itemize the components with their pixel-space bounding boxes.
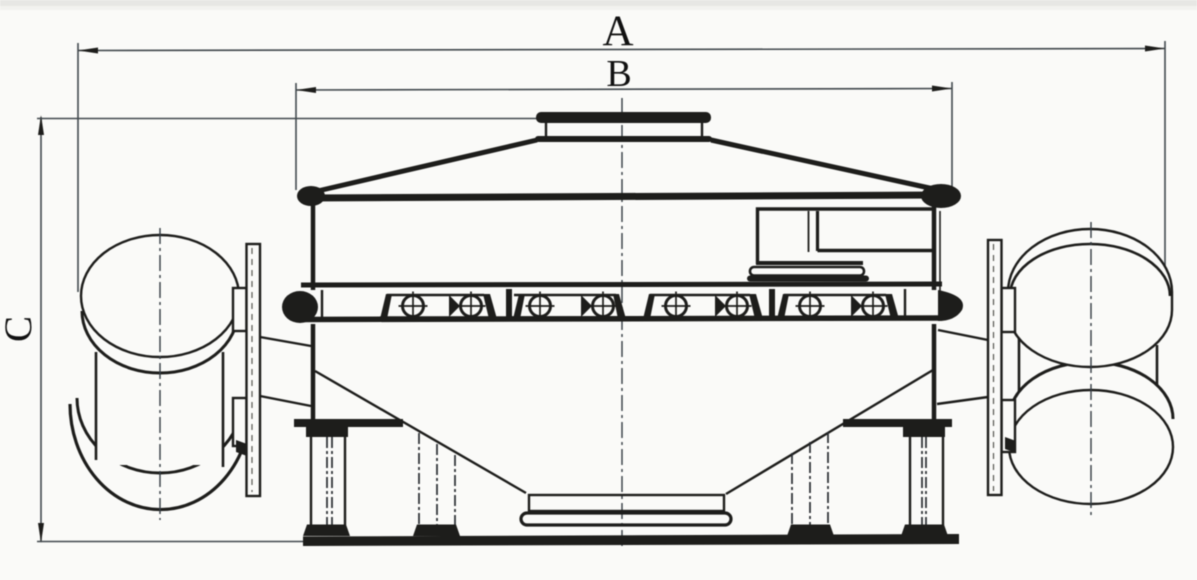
svg-text:C: C: [0, 316, 40, 342]
svg-text:B: B: [606, 53, 631, 95]
svg-text:A: A: [602, 8, 633, 55]
